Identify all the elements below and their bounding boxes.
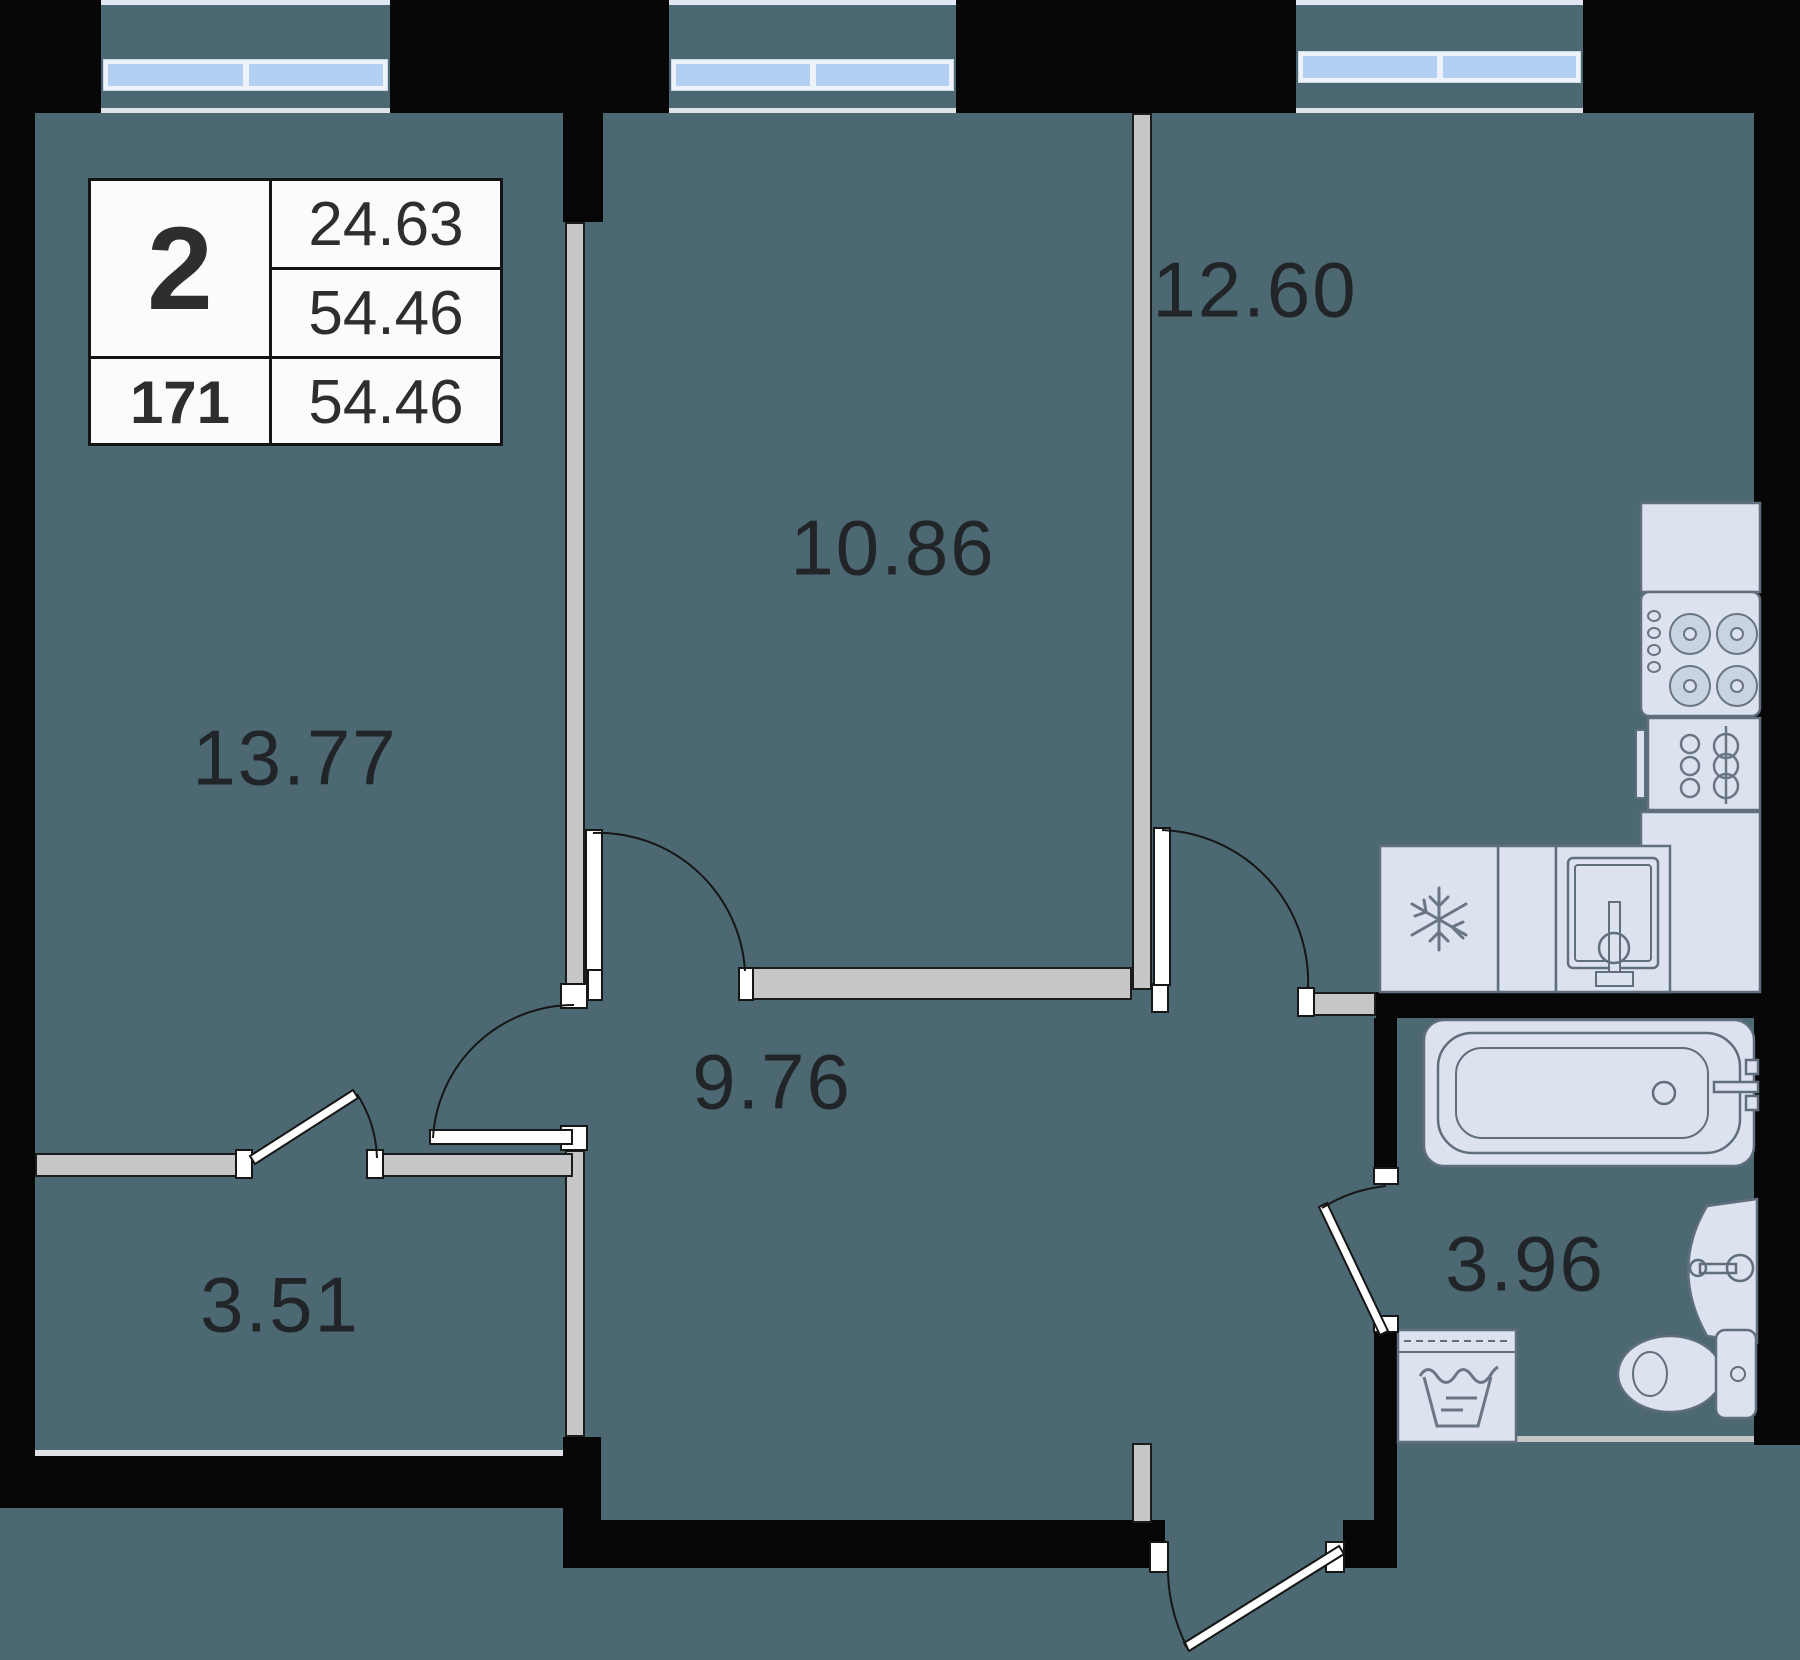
- room-label-bathroom: 3.96: [1445, 1219, 1605, 1310]
- wash-basin: [1688, 1199, 1757, 1343]
- wardrobe-door-leaf: [250, 1090, 358, 1164]
- unit-number: 171: [91, 359, 269, 446]
- floor-plan: 13.77 10.86 12.60 9.76 3.51 3.96 2 24.63…: [0, 0, 1800, 1660]
- stove: [1641, 592, 1760, 716]
- room-label-wardrobe: 3.51: [200, 1260, 360, 1351]
- total-area-repeat-value: 54.46: [272, 359, 500, 446]
- room-label-living: 13.77: [192, 713, 397, 804]
- rooms-count: 2: [91, 181, 269, 356]
- bedroom-door-leaf: [586, 830, 602, 970]
- door-leaves: [250, 828, 1388, 1651]
- oven: [1636, 718, 1760, 810]
- apartment-info-table: 2 24.63 54.46 171 54.46: [88, 178, 503, 446]
- room-label-kitchen: 12.60: [1152, 245, 1357, 336]
- bathtub: [1424, 1020, 1758, 1166]
- kitchen-door-leaf: [1154, 828, 1170, 985]
- bathroom-door-leaf: [1319, 1203, 1388, 1335]
- living-area-value: 24.63: [272, 181, 500, 267]
- door-swing-arcs: [357, 830, 1386, 1649]
- toilet: [1618, 1330, 1756, 1418]
- washing-machine: [1398, 1330, 1516, 1442]
- room-label-hallway: 9.76: [692, 1037, 852, 1128]
- living-door-leaf: [430, 1130, 572, 1144]
- entry-door-leaf: [1184, 1546, 1344, 1651]
- total-area-value: 54.46: [272, 270, 500, 356]
- room-label-bedroom: 10.86: [790, 503, 995, 594]
- kitchen-sink: [1556, 846, 1670, 992]
- fridge: [1380, 846, 1498, 992]
